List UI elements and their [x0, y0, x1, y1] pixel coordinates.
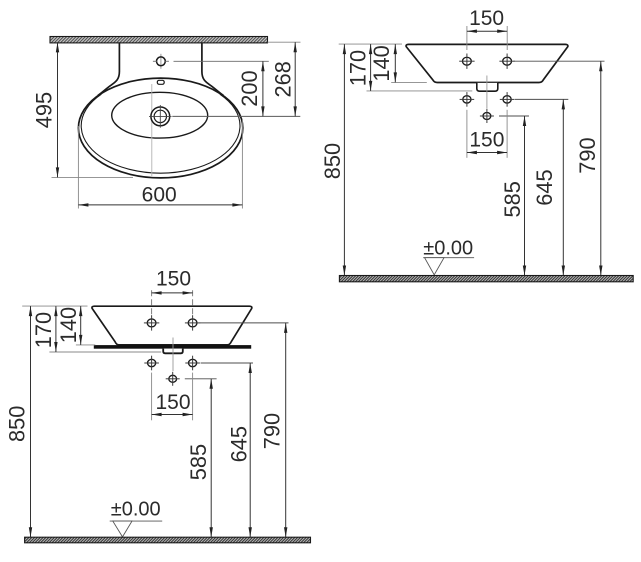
- svg-text:200: 200: [237, 70, 262, 106]
- svg-text:645: 645: [227, 426, 252, 462]
- svg-text:140: 140: [56, 307, 81, 343]
- svg-text:±0.00: ±0.00: [111, 499, 161, 521]
- svg-text:170: 170: [346, 50, 371, 86]
- svg-text:140: 140: [369, 45, 394, 81]
- svg-text:850: 850: [320, 143, 345, 179]
- svg-text:585: 585: [186, 444, 211, 480]
- svg-text:585: 585: [500, 181, 525, 217]
- svg-text:790: 790: [260, 413, 285, 449]
- svg-text:790: 790: [575, 137, 600, 173]
- svg-text:600: 600: [142, 183, 177, 206]
- svg-text:150: 150: [469, 128, 504, 151]
- svg-text:850: 850: [4, 406, 29, 442]
- svg-text:170: 170: [31, 312, 56, 348]
- svg-text:495: 495: [32, 92, 57, 128]
- svg-text:150: 150: [155, 391, 190, 414]
- svg-text:268: 268: [271, 61, 296, 97]
- svg-text:150: 150: [469, 7, 504, 30]
- svg-text:150: 150: [156, 268, 191, 291]
- svg-text:±0.00: ±0.00: [423, 238, 473, 260]
- svg-text:645: 645: [532, 169, 557, 205]
